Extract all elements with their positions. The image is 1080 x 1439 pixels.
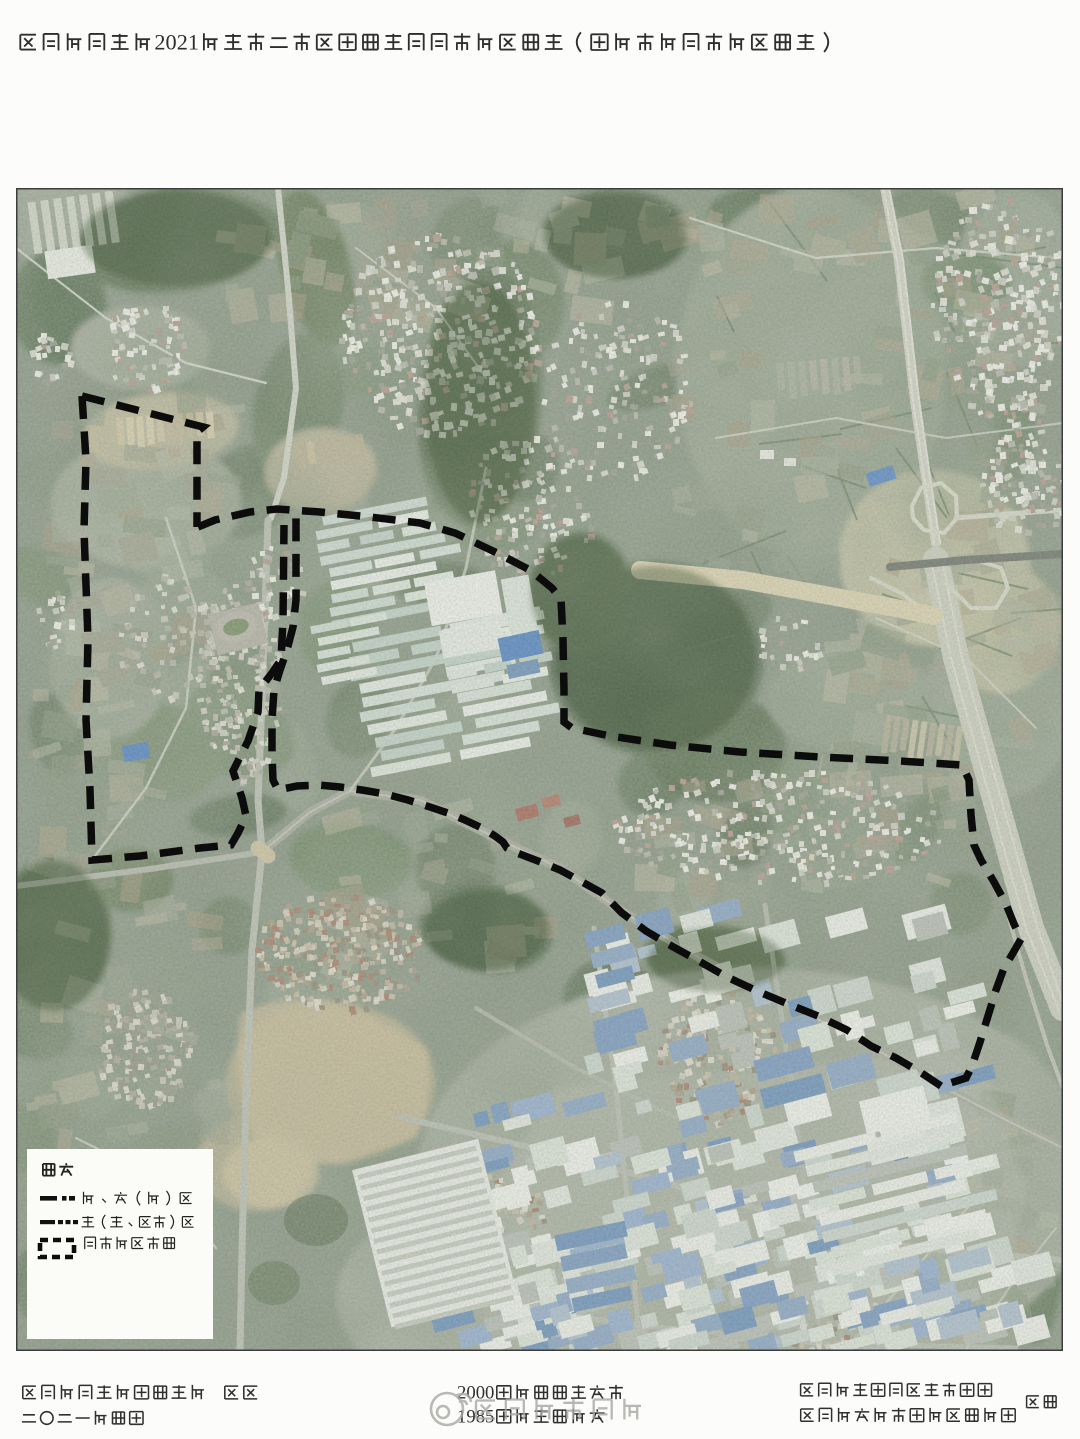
svg-text:2021: 2021	[154, 29, 199, 54]
